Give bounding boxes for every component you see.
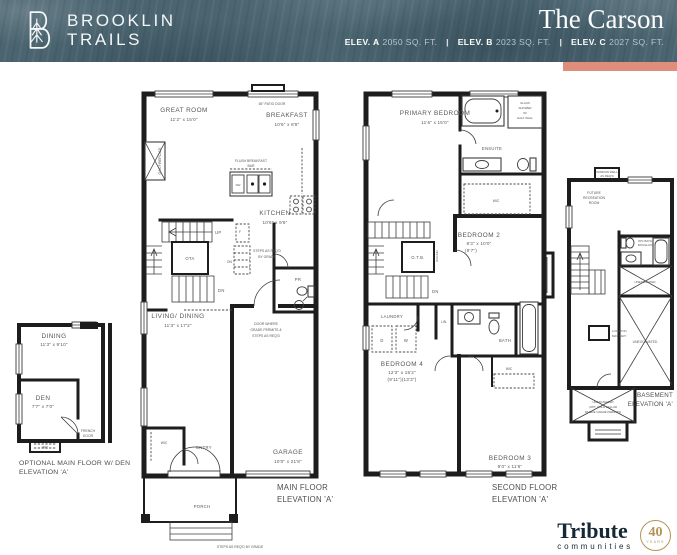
living-dining-dims: 11'3" x 17'2" <box>164 323 192 328</box>
elev-a-label: ELEV. A <box>345 37 380 47</box>
room-labels: GREAT ROOM 11'2" x 15'0" 65" PATIO DOOR … <box>151 102 307 464</box>
stairs <box>571 246 605 294</box>
great-room-label: GREAT ROOM <box>160 107 208 114</box>
seal-number: 40 <box>649 526 663 540</box>
den-label: DEN <box>36 395 51 402</box>
brand-name: Tribute <box>557 521 633 541</box>
elev-b-value: 2023 SQ. FT. <box>496 37 551 47</box>
logo-wordmark: BROOKLIN TRAILS <box>67 11 176 49</box>
door-grade-3: STEPS AS REQ'D <box>252 334 280 338</box>
optional-caption-1: OPTIONAL MAIN FLOOR W/ DEN <box>19 460 130 467</box>
breakfast-label: BREAKFAST <box>266 112 308 119</box>
logo-line1: BROOKLIN <box>67 11 176 30</box>
plan-caption: SECOND FLOOR ELEVATION 'A' <box>492 483 558 504</box>
garage-dims: 10'0" x 21'8" <box>274 459 302 464</box>
future-rec-2: RECREATION <box>583 196 606 200</box>
second-caption-2: ELEVATION 'A' <box>492 495 548 504</box>
floorplan-sheet: BROOKLIN TRAILS The Carson ELEV. A2050 S… <box>0 0 677 555</box>
elev-c-label: ELEV. C <box>571 37 606 47</box>
brand-subtitle: communities <box>557 542 633 551</box>
future-rec-1: FUTURE <box>587 191 601 195</box>
seal-label: YEARS <box>646 541 664 545</box>
second-floor-plan: GLASS SHOWER W/ HALF WALL ENSUITE WIC O.… <box>358 86 558 516</box>
window-well-2: AS REQ'D <box>600 174 614 178</box>
main-caption-2: ELEVATION 'A' <box>277 495 333 504</box>
forty-years-seal: 40 YEARS <box>640 520 671 551</box>
logo-line2: TRAILS <box>67 30 176 49</box>
plan-caption: MAIN FLOOR ELEVATION 'A' <box>277 483 333 504</box>
elevation-areas: ELEV. A2050 SQ. FT. | ELEV. B2023 SQ. FT… <box>345 37 664 47</box>
tree-b-logo-icon <box>24 9 58 51</box>
french-door-2: DOOR <box>83 434 94 438</box>
fridge-label: F <box>239 230 241 234</box>
living-dining-label: LIVING/ DINING <box>151 313 204 320</box>
dn2-label: DN <box>227 260 232 264</box>
dining-label: DINING <box>41 333 66 340</box>
bath-fixtures: BATH WIC <box>458 302 538 388</box>
wic-label: WIC <box>42 446 49 450</box>
stairs: UP OTA DN <box>146 222 225 302</box>
primary-bedroom-label: PRIMARY BEDROOM <box>400 110 470 117</box>
ensuite-label: ENSUITE <box>482 146 502 151</box>
up-label: UP <box>215 230 221 235</box>
stove <box>290 148 315 214</box>
shower-label-3: W/ <box>523 111 527 115</box>
gas-fireplace-label: GAS FIREPLACE <box>158 147 162 175</box>
bath-rough-label-2: ROUGH-IN <box>638 243 653 247</box>
ensuite-fixtures: GLASS SHOWER W/ HALF WALL ENSUITE WIC <box>462 96 542 214</box>
shower-label-4: HALF WALL <box>517 116 533 120</box>
main-floor-plan: GAS FIREPLACE DW FLUSH BREAKFAST BAR F <box>136 84 340 555</box>
steps-grade-1: STEPS AS REQ'D <box>253 249 281 253</box>
den-dims: 7'7" x 7'0" <box>32 404 54 409</box>
door-grade-2: GRADE PERMITS & <box>250 328 282 332</box>
dishwasher-label: DW <box>236 183 241 187</box>
windows-doors <box>363 91 547 477</box>
elev-c-value: 2027 SQ. FT. <box>609 37 664 47</box>
patio-door-label: 65" PATIO DOOR <box>259 102 286 106</box>
kitchen-label: KITCHEN <box>259 210 290 217</box>
main-caption-1: MAIN FLOOR <box>277 483 328 492</box>
kitchen-dims: 10'6" x 9'6" <box>262 220 287 225</box>
separator: | <box>559 37 562 47</box>
plan-caption: OPTIONAL MAIN FLOOR W/ DEN ELEVATION 'A' <box>19 460 130 476</box>
shower-label-2: SHOWER <box>518 106 531 110</box>
otb-label: O.T.B. <box>411 255 424 260</box>
bath-label: BATH <box>499 338 511 343</box>
tribute-logo: Tribute communities 40 YEARS <box>557 520 671 551</box>
porch-label: PORCH <box>194 504 211 509</box>
flush-bar-label-2: BAR <box>248 164 256 168</box>
porch: PORCH STEPS AS REQ'D BY GRADE <box>141 476 264 549</box>
bedroom4-dims2: (9'11")(13'3") <box>388 377 417 382</box>
elev-a-value: 2050 SQ. FT. <box>383 37 438 47</box>
wic-bed3-label: WIC <box>506 367 513 371</box>
walls <box>366 94 553 474</box>
walls <box>569 168 672 440</box>
optional-caption-2: ELEVATION 'A' <box>19 469 68 476</box>
steps-grade-2: BY GRADE <box>258 255 276 259</box>
room-labels: PRIMARY BEDROOM 11'6" x 15'0" BEDROOM 2 … <box>381 110 531 469</box>
brooklin-trails-logo: BROOKLIN TRAILS <box>24 9 176 51</box>
breakfast-dims: 10'6" x 8'8" <box>274 122 299 127</box>
dining-dims: 11'3" x 9'10" <box>40 342 68 347</box>
separator: | <box>446 37 449 47</box>
bedroom2-dims: 8'3" x 10'0" <box>466 241 491 246</box>
primary-bedroom-dims: 11'6" x 15'0" <box>421 120 449 125</box>
garage-label: GARAGE <box>273 449 303 456</box>
cold-cellar-1: UNEXCAVATED <box>592 400 613 404</box>
shower-label-1: GLASS <box>520 101 530 105</box>
ota-label: OTA <box>185 256 194 261</box>
bedroom2-label: BEDROOM 2 <box>458 232 500 239</box>
basement-caption-2: ELEVATION 'A' <box>628 401 673 408</box>
unexcavated-small-label: UNEXCAVATED <box>634 280 655 284</box>
french-door-1: FRENCH <box>81 429 96 433</box>
accent-bar <box>563 62 677 71</box>
bedroom3-label: BEDROOM 3 <box>489 455 531 462</box>
basement-caption-1: BASEMENT <box>637 392 673 399</box>
header-banner: BROOKLIN TRAILS The Carson ELEV. A2050 S… <box>0 0 677 62</box>
dryer-label: D <box>380 338 383 343</box>
steps-bottom-label: STEPS AS REQ'D BY GRADE <box>217 545 264 549</box>
page-title: The Carson <box>345 3 664 35</box>
wic-primary-label: WIC <box>493 199 500 203</box>
wic-label: WIC <box>161 441 168 445</box>
title-block: The Carson ELEV. A2050 SQ. FT. | ELEV. B… <box>345 3 664 47</box>
cold-cellar-3: WHERE GRADE PERMITS) <box>585 410 621 414</box>
future-rec-3: ROOM <box>589 201 600 205</box>
door-grade-1: DOOR WHERE <box>254 322 278 326</box>
washer-label: W <box>404 338 408 343</box>
great-room-dims: 11'2" x 15'0" <box>170 117 198 122</box>
flush-bar-label-1: FLUSH BREAKFAST <box>235 159 267 163</box>
dn-label: DN <box>432 289 439 294</box>
unexcavated-label: UNEXCAVATED <box>633 340 658 344</box>
location-1: LOCATION <box>612 329 627 333</box>
elev-b-label: ELEV. B <box>458 37 493 47</box>
laundry-label: LAUNDRY <box>381 314 403 319</box>
entry-label: ENTRY <box>196 445 212 450</box>
bedroom4-dims: 12'3" x 15'2" <box>388 370 416 375</box>
bedroom3-dims: 9'0" x 11'6" <box>498 464 523 469</box>
pr-label: PR <box>295 277 301 282</box>
bedroom4-label: BEDROOM 4 <box>381 361 423 368</box>
cold-cellar-2: (OPT. COLD CELLAR <box>589 405 617 409</box>
gas-fireplace: GAS FIREPLACE <box>145 142 165 180</box>
bath-rough-in: 3PC BATH ROUGH-IN <box>621 238 669 265</box>
dn-label: DN <box>218 288 225 293</box>
bedroom2-dims2: (9'7") <box>465 248 477 253</box>
second-caption-1: SECOND FLOOR <box>492 483 558 492</box>
kitchen-island: DW FLUSH BREAKFAST BAR <box>230 159 272 196</box>
basement-plan: 3PC BATH ROUGH-IN UNEXCAVATED UNEXCAVATE… <box>563 166 677 452</box>
room-labels: DINING 11'3" x 9'10" DEN 7'7" x 7'0" FRE… <box>32 333 96 450</box>
optional-floor-plan: DINING 11'3" x 9'10" DEN 7'7" x 7'0" FRE… <box>14 318 122 478</box>
stairs: O.T.B. RAILING DN <box>368 222 439 298</box>
walls <box>144 94 316 476</box>
railing-label: RAILING <box>435 249 439 261</box>
linen-label: LIN. <box>441 320 447 324</box>
location-2: MAY VARY <box>612 334 626 338</box>
entry-wic: WIC ENTRY <box>151 432 212 462</box>
fridge: F <box>236 224 249 242</box>
